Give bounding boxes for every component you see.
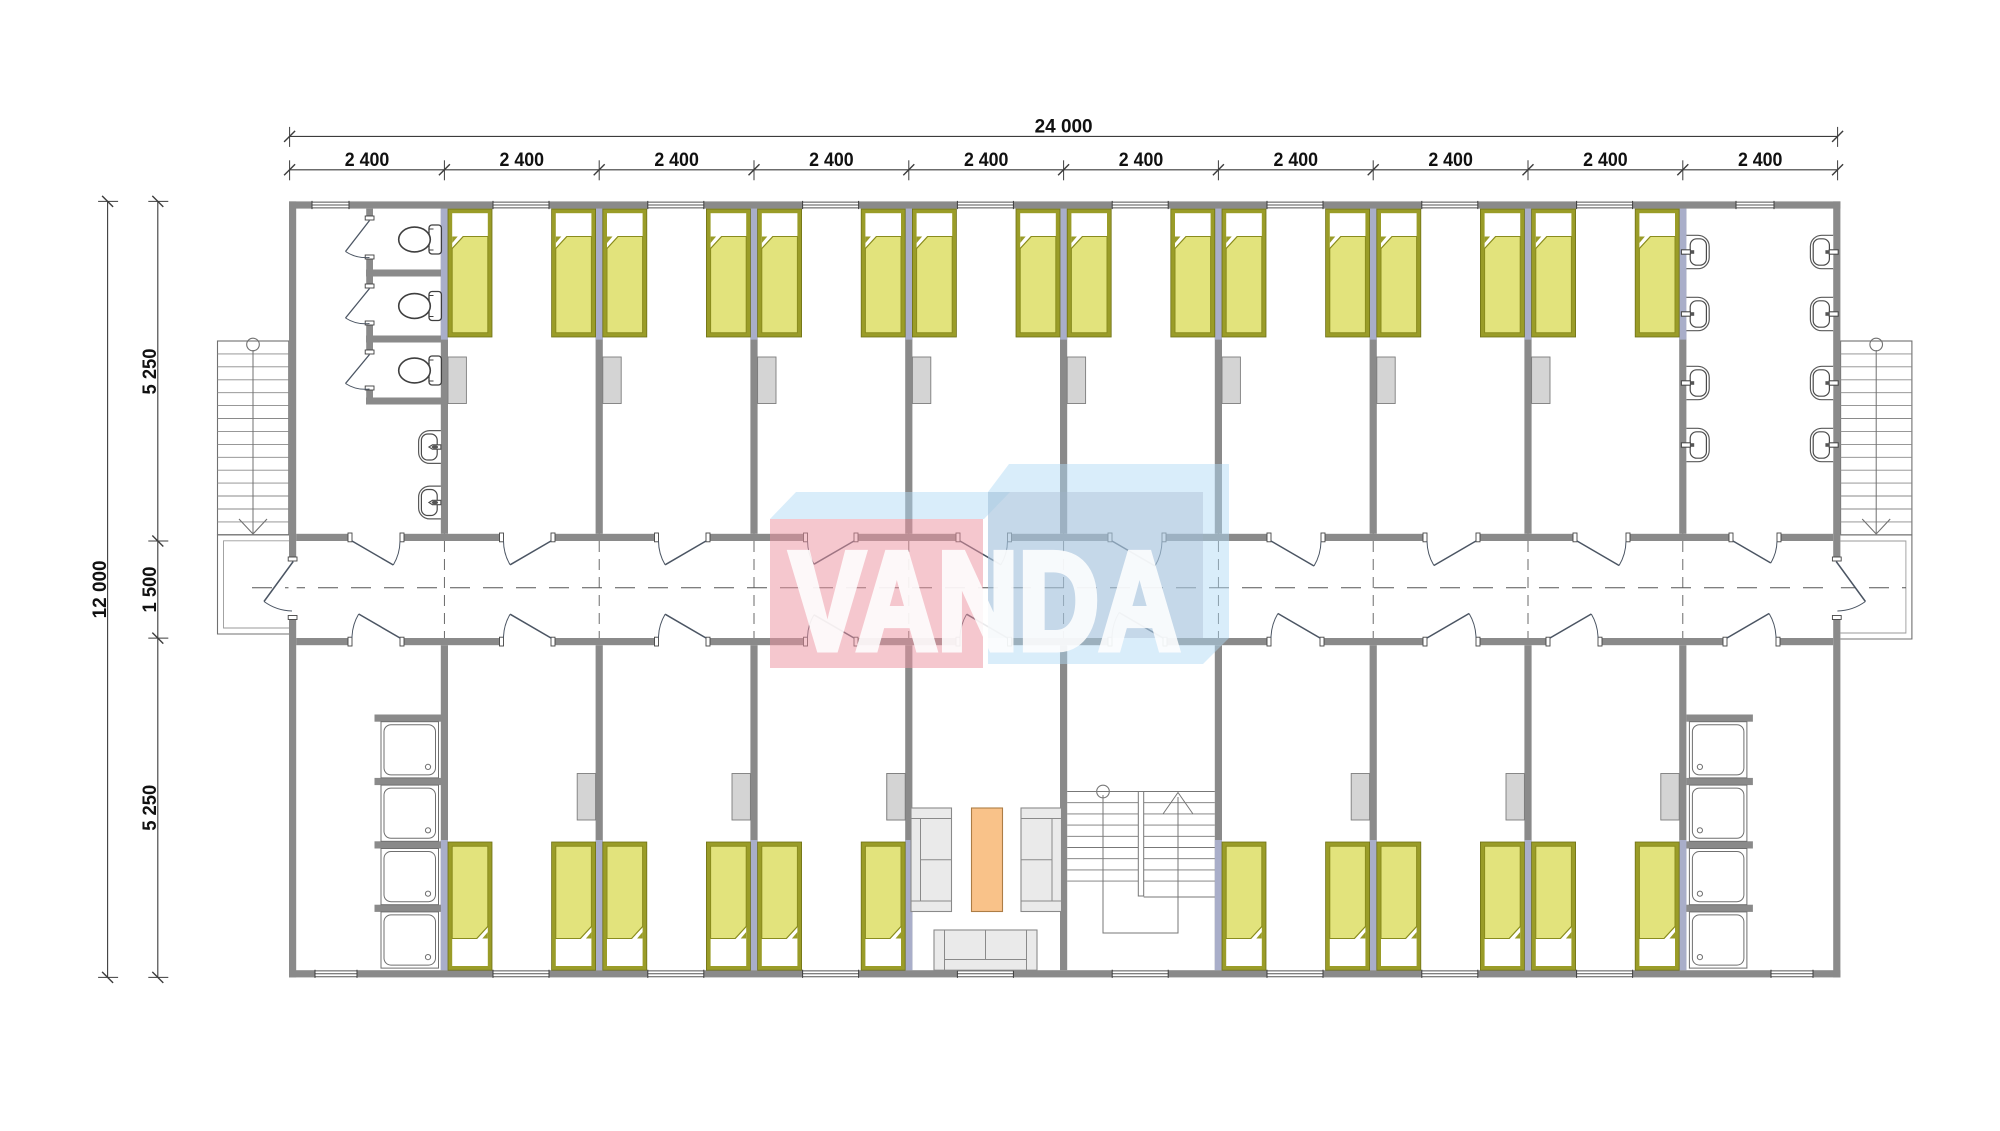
svg-text:2 400: 2 400	[964, 149, 1009, 171]
svg-text:2 400: 2 400	[1738, 149, 1783, 171]
svg-text:2 400: 2 400	[654, 149, 699, 171]
svg-text:2 400: 2 400	[345, 149, 390, 171]
svg-text:2 400: 2 400	[1119, 149, 1164, 171]
svg-text:2 400: 2 400	[500, 149, 545, 171]
svg-text:24 000: 24 000	[1035, 115, 1093, 137]
svg-text:2 400: 2 400	[1583, 149, 1628, 171]
svg-text:12 000: 12 000	[89, 560, 111, 618]
svg-text:2 400: 2 400	[1428, 149, 1473, 171]
svg-text:2 400: 2 400	[1274, 149, 1319, 171]
svg-text:1 500: 1 500	[139, 566, 161, 612]
svg-text:5 250: 5 250	[139, 785, 161, 831]
svg-text:2 400: 2 400	[809, 149, 854, 171]
svg-text:5 250: 5 250	[139, 348, 161, 394]
svg-text:VANDA: VANDA	[790, 524, 1180, 679]
